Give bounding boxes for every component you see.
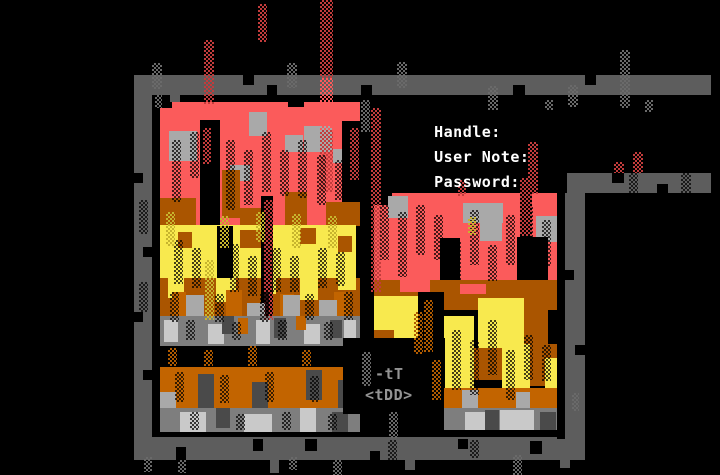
- ansi-dither-column: [520, 178, 532, 236]
- ansi-block: [267, 85, 277, 95]
- ansi-block: [134, 173, 143, 183]
- ansi-dither-column: [513, 455, 522, 475]
- ansi-block: [560, 460, 570, 468]
- ansi-dither-column: [434, 215, 443, 260]
- ansi-block: [557, 190, 565, 439]
- ansi-block: [460, 284, 486, 294]
- ansi-dither-column: [335, 160, 344, 200]
- ansi-dither-column: [220, 216, 229, 248]
- ansi-block: [243, 75, 254, 85]
- ansi-block: [405, 457, 415, 470]
- ansi-dither-column: [170, 292, 179, 322]
- ansi-dither-column: [320, 0, 333, 78]
- ansi-dither-column: [398, 212, 407, 277]
- ansi-block: [465, 412, 487, 432]
- ansi-dither-column: [629, 173, 638, 193]
- ansi-block: [480, 223, 502, 241]
- ansi-dither-column: [318, 248, 327, 288]
- ansi-dither-column: [232, 322, 241, 340]
- ansi-dither-column: [190, 132, 199, 178]
- ansi-block: [143, 370, 152, 380]
- ansi-dither-column: [298, 140, 307, 198]
- ansi-block: [565, 270, 574, 280]
- ansi-dither-column: [230, 244, 239, 292]
- ansi-block: [176, 447, 186, 460]
- ansi-dither-column: [310, 376, 319, 402]
- ansi-dither-column: [175, 372, 184, 402]
- artist-signature-line1: -tT: [375, 366, 404, 383]
- ansi-dither-column: [371, 108, 381, 168]
- ansi-block: [244, 414, 272, 432]
- ansi-block: [226, 290, 242, 318]
- ansi-dither-column: [168, 348, 177, 366]
- ansi-dither-column: [186, 320, 195, 340]
- ansi-block: [485, 410, 499, 430]
- ansi-dither-column: [524, 335, 533, 380]
- ansi-block: [270, 460, 279, 473]
- ansi-dither-column: [468, 217, 476, 235]
- ansi-block: [458, 439, 468, 449]
- ansi-dither-column: [328, 414, 337, 430]
- ansi-block: [304, 324, 320, 344]
- ansi-block: [444, 430, 557, 437]
- ansi-dither-column: [542, 345, 551, 381]
- ansi-dither-column: [362, 352, 371, 386]
- ansi-dither-column: [324, 322, 333, 340]
- ansi-dither-column: [397, 62, 407, 88]
- ansi-dither-column: [258, 4, 267, 42]
- ansi-dither-column: [424, 300, 433, 352]
- ansi-block: [160, 392, 176, 408]
- password-label: Password:: [434, 173, 520, 191]
- ansi-dither-column: [328, 216, 337, 248]
- ansi-block: [540, 412, 556, 430]
- ansi-dither-column: [280, 150, 289, 196]
- ansi-block: [516, 392, 530, 408]
- ansi-dither-column: [633, 152, 643, 173]
- ansi-dither-column: [452, 240, 461, 280]
- ansi-dither-column: [452, 330, 461, 390]
- ansi-dither-column: [152, 63, 162, 89]
- ansi-block: [575, 345, 585, 355]
- ansi-dither-column: [215, 294, 224, 322]
- ansi-dither-column: [256, 212, 265, 242]
- ansi-block: [134, 312, 143, 322]
- ansi-block: [585, 75, 596, 85]
- ansi-dither-column: [488, 245, 497, 281]
- ansi-dither-column: [226, 140, 235, 210]
- ansi-block: [444, 388, 557, 410]
- ansi-dither-column: [155, 95, 162, 108]
- artist-signature-line2: <tDD>: [365, 387, 413, 404]
- ansi-dither-column: [192, 248, 201, 288]
- ansi-dither-column: [572, 393, 579, 411]
- ansi-block: [612, 173, 624, 183]
- ansi-dither-column: [620, 50, 630, 108]
- ansi-dither-column: [336, 252, 345, 286]
- ansi-dither-column: [432, 360, 441, 400]
- ansi-block: [657, 184, 668, 193]
- ansi-dither-column: [389, 412, 398, 438]
- ansi-block: [361, 85, 372, 95]
- ansi-dither-column: [388, 440, 397, 460]
- ansi-block: [134, 95, 152, 437]
- ansi-block: [478, 298, 524, 348]
- bbs-terminal-screen: Handle: User Note: Password: -tT <tDD>: [0, 0, 720, 475]
- ansi-block: [300, 228, 316, 244]
- ansi-dither-column: [320, 78, 333, 130]
- ansi-block: [370, 451, 380, 460]
- ansi-block: [288, 102, 304, 107]
- ansi-dither-column: [414, 312, 423, 354]
- ansi-block: [283, 295, 300, 318]
- ansi-dither-column: [174, 240, 183, 284]
- ansi-dither-column: [139, 200, 148, 234]
- ansi-block: [338, 236, 352, 252]
- ansi-block: [530, 441, 542, 454]
- ansi-dither-column: [272, 248, 281, 292]
- ansi-dither-column: [178, 460, 186, 473]
- ansi-dither-column: [144, 457, 152, 472]
- ansi-dither-column: [190, 412, 199, 430]
- ansi-dither-column: [278, 320, 287, 340]
- ansi-block: [667, 95, 678, 102]
- ansi-dither-column: [333, 460, 342, 475]
- ansi-dither-column: [317, 155, 326, 205]
- ansi-dither-column: [506, 350, 515, 400]
- ansi-block: [253, 439, 263, 451]
- ansi-block: [160, 432, 360, 437]
- ansi-dither-column: [488, 320, 497, 375]
- ansi-block: [256, 320, 270, 344]
- ansi-dither-column: [287, 63, 297, 88]
- ansi-dither-column: [416, 205, 425, 255]
- ansi-dither-column: [282, 412, 291, 430]
- ansi-dither-column: [166, 212, 175, 246]
- ansi-dither-column: [205, 260, 214, 320]
- ansi-dither-column: [645, 100, 653, 112]
- ansi-dither-column: [262, 132, 271, 192]
- ansi-dither-column: [470, 440, 479, 458]
- ansi-dither-column: [350, 128, 359, 180]
- ansi-dither-column: [614, 162, 624, 173]
- ansi-block: [400, 280, 430, 292]
- ansi-block: [500, 410, 534, 432]
- ansi-block: [164, 320, 178, 342]
- ansi-block: [160, 346, 360, 367]
- ansi-dither-column: [172, 140, 181, 202]
- ansi-dither-column: [248, 346, 257, 366]
- ansi-dither-column: [292, 214, 301, 248]
- ansi-dither-column: [380, 205, 389, 260]
- ansi-dither-column: [545, 100, 553, 110]
- ansi-block: [216, 408, 230, 428]
- ansi-block: [143, 247, 152, 257]
- ansi-dither-column: [236, 414, 245, 430]
- ansi-dither-column: [470, 340, 479, 395]
- ansi-dither-column: [260, 292, 269, 322]
- ansi-dither-column: [204, 40, 214, 104]
- ansi-dither-column: [361, 100, 370, 132]
- ansi-dither-column: [290, 256, 299, 292]
- ansi-dither-column: [305, 294, 314, 320]
- ansi-dither-column: [248, 256, 257, 296]
- ansi-dither-column: [220, 375, 229, 403]
- ansi-dither-column: [348, 372, 357, 400]
- ansi-block: [513, 85, 525, 95]
- ansi-dither-column: [568, 85, 578, 107]
- ansi-dither-column: [265, 372, 274, 402]
- ansi-block: [198, 374, 214, 408]
- ansi-dither-column: [204, 350, 213, 366]
- ansi-dither-column: [542, 220, 551, 266]
- password-field[interactable]: Password:: [396, 157, 520, 208]
- ansi-dither-column: [203, 128, 211, 164]
- ansi-dither-column: [244, 150, 253, 205]
- ansi-dither-column: [344, 292, 353, 320]
- ansi-block: [305, 439, 317, 451]
- ansi-dither-column: [139, 282, 148, 312]
- ansi-block: [300, 408, 316, 432]
- ansi-dither-column: [302, 350, 311, 366]
- ansi-dither-column: [681, 173, 691, 193]
- ansi-block: [374, 408, 444, 437]
- ansi-dither-column: [289, 457, 297, 470]
- ansi-dither-column: [506, 215, 515, 265]
